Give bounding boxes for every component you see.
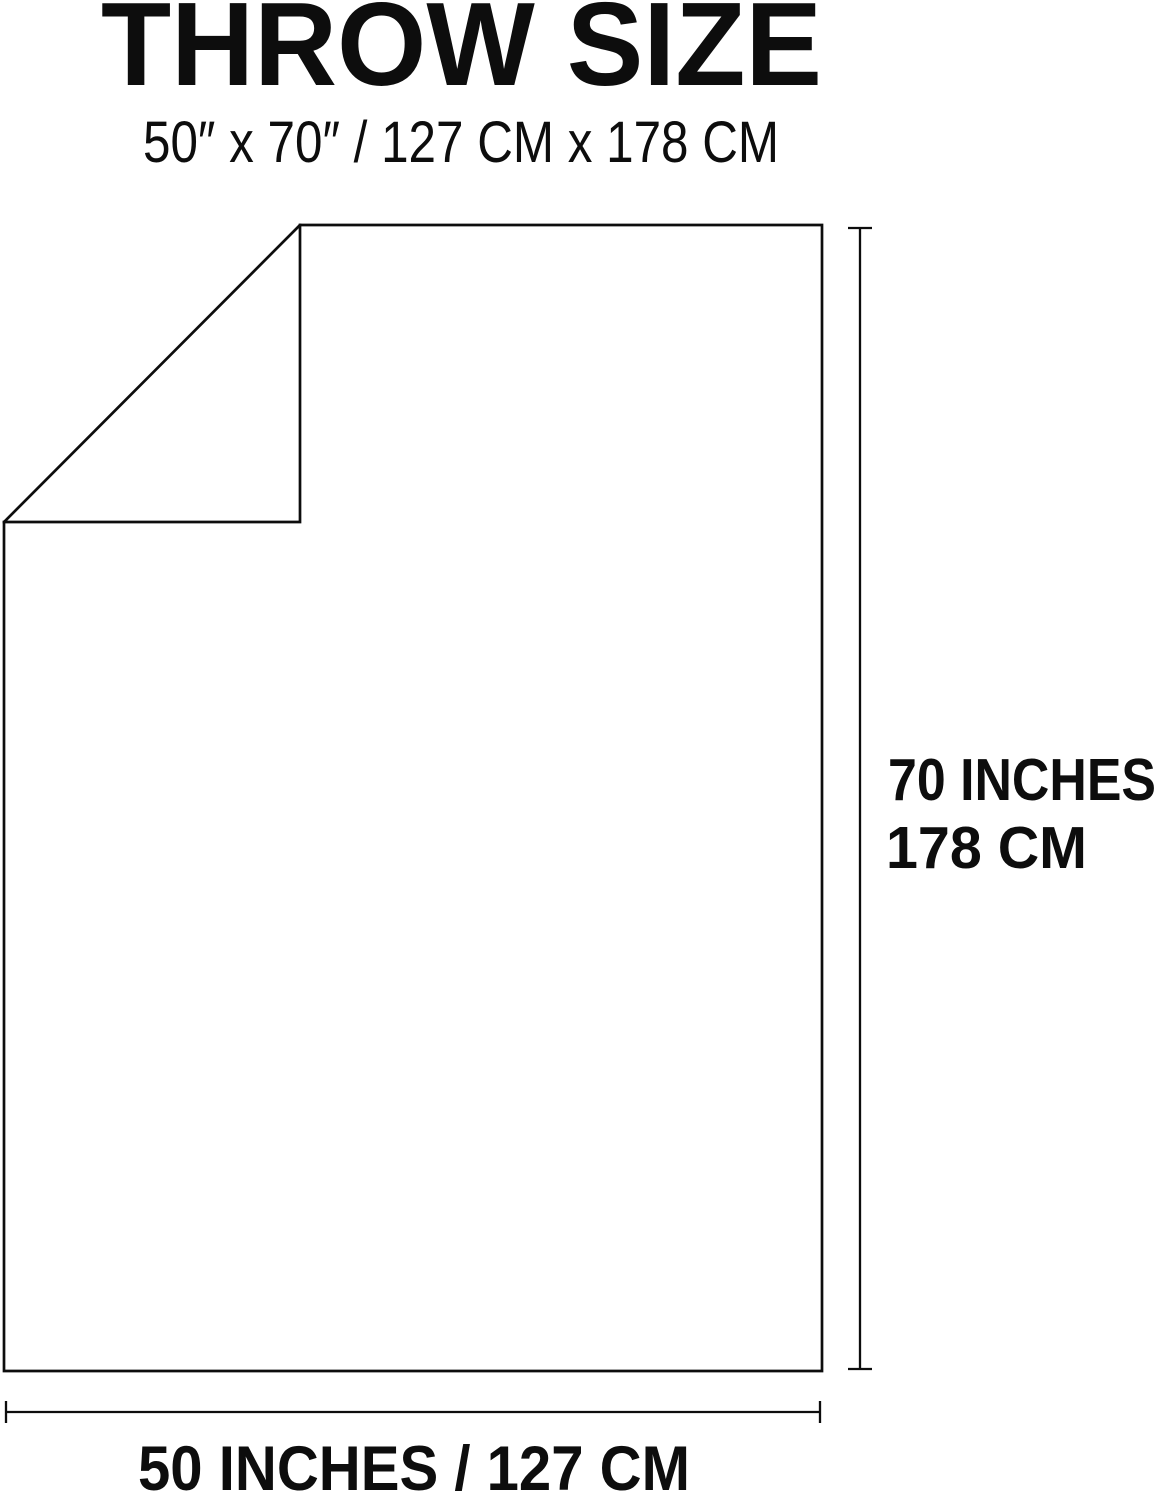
svg-text:50″ x 70″ / 127 CM x 178 CM: 50″ x 70″ / 127 CM x 178 CM (143, 110, 779, 175)
svg-text:178 CM: 178 CM (886, 815, 1087, 881)
svg-text:50 INCHES / 127 CM: 50 INCHES / 127 CM (138, 1434, 690, 1500)
svg-text:THROW SIZE: THROW SIZE (101, 0, 822, 111)
svg-text:70 INCHES: 70 INCHES (888, 747, 1156, 813)
